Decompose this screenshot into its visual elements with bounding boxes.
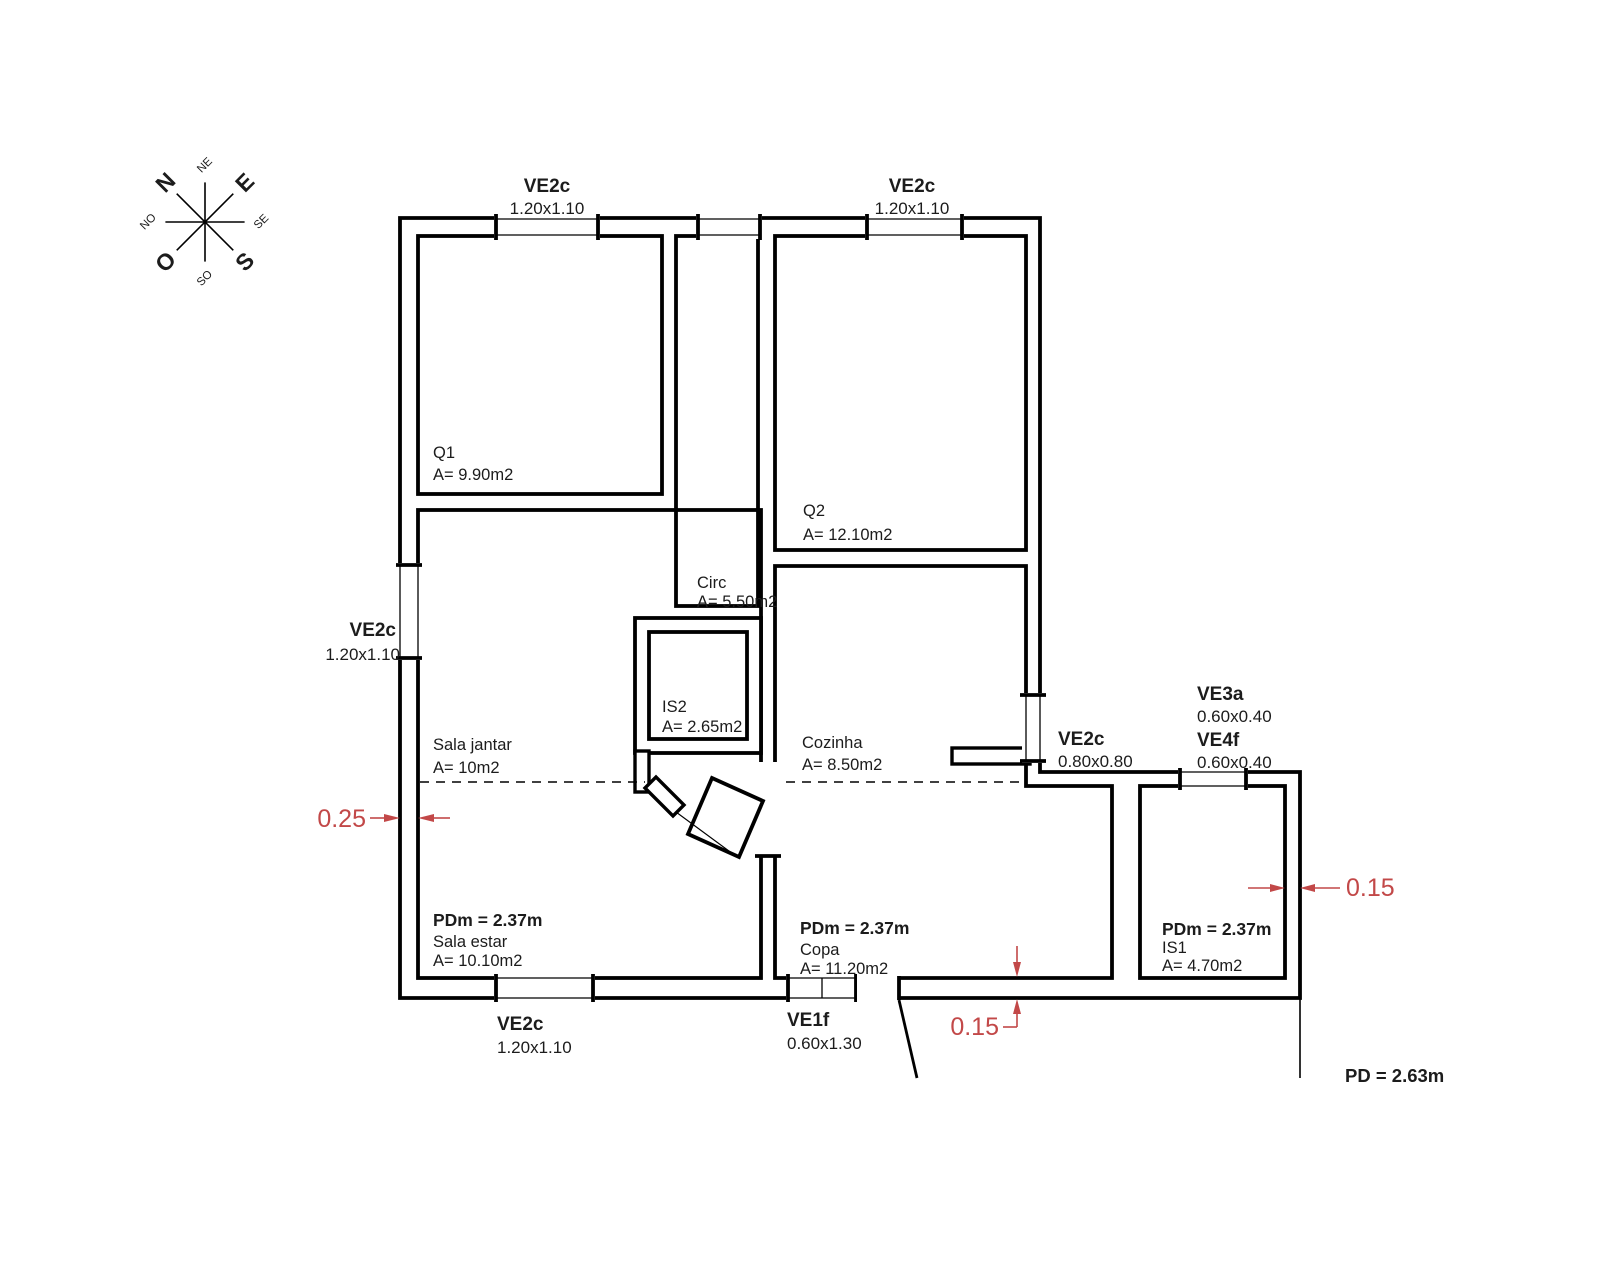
room-label-cozinha: Cozinha A= 8.50m2 — [802, 734, 882, 774]
window-label-top-right: VE2c 1.20x1.10 — [875, 176, 950, 218]
window-ve4f-label: VE4f — [1197, 730, 1240, 751]
room-sala-estar-pdm: PDm = 2.37m — [433, 910, 542, 930]
window-ve2c-top-left-size: 1.20x1.10 — [510, 199, 585, 218]
window-label-left: VE2c 1.20x1.10 — [325, 620, 400, 664]
window-ve2c-right — [1020, 693, 1046, 763]
window-ve1f-size: 0.60x1.30 — [787, 1034, 862, 1053]
room-label-is1: PDm = 2.37m IS1 A= 4.70m2 — [1162, 919, 1271, 975]
room-q1-name: Q1 — [433, 444, 455, 462]
room-is1-name: IS1 — [1162, 939, 1187, 957]
window-ve2c-top-left-label: VE2c — [524, 176, 571, 197]
room-is2-area: A= 2.65m2 — [662, 718, 742, 736]
window-ve2c-left-label: VE2c — [350, 620, 397, 641]
room-outline-circ — [676, 236, 758, 606]
compass-se: SE — [252, 212, 272, 232]
compass-ne: NE — [195, 155, 215, 175]
wall-stub-cozinha-copa — [952, 748, 1030, 764]
window-ve1f — [786, 974, 858, 1002]
compass-s: S — [230, 247, 259, 276]
dimension-wall-left: 0.25 — [317, 805, 450, 833]
door-leaf — [688, 778, 763, 857]
compass-so: SO — [195, 268, 215, 288]
room-label-q2: Q2 A= 12.10m2 — [803, 502, 892, 544]
room-copa-pdm: PDm = 2.37m — [800, 918, 909, 938]
room-sala-jantar-area: A= 10m2 — [433, 759, 500, 777]
room-is2-name: IS2 — [662, 698, 687, 716]
room-cozinha-area: A= 8.50m2 — [802, 756, 882, 774]
room-q1-area: A= 9.90m2 — [433, 466, 513, 484]
room-copa-name: Copa — [800, 941, 840, 959]
window-ve4f-size: 0.60x0.40 — [1197, 753, 1272, 772]
room-cozinha-name: Cozinha — [802, 734, 863, 752]
room-label-sala-estar: PDm = 2.37m Sala estar A= 10.10m2 — [433, 910, 542, 970]
dimension-wall-bottom-value: 0.15 — [950, 1013, 999, 1041]
room-label-copa: PDm = 2.37m Copa A= 11.20m2 — [800, 918, 909, 978]
window-ve1f-label: VE1f — [787, 1010, 830, 1031]
window-ve2c-top-right-size: 1.20x1.10 — [875, 199, 950, 218]
room-is1-pdm: PDm = 2.37m — [1162, 919, 1271, 939]
window-ve3a-label: VE3a — [1197, 684, 1244, 705]
window-ve2c-bottom-label: VE2c — [497, 1014, 544, 1035]
window-circ-top — [696, 214, 762, 240]
floor-plan-page: 0.25 0.15 0.15 VE2c 1.20x1.10 VE2c 1.20x… — [0, 0, 1600, 1280]
window-ve2c-right-size: 0.80x0.80 — [1058, 752, 1133, 771]
compass-n: N — [150, 167, 180, 197]
window-label-ve1f: VE1f 0.60x1.30 — [787, 1010, 862, 1053]
window-ve2c-right-label: VE2c — [1058, 729, 1105, 750]
room-sala-estar-name: Sala estar — [433, 933, 508, 951]
compass-no: NO — [138, 212, 159, 233]
entry-door-leaf — [899, 1000, 917, 1078]
compass-e: E — [230, 168, 259, 197]
room-copa-area: A= 11.20m2 — [800, 960, 888, 978]
window-ve2c-left-size: 1.20x1.10 — [325, 645, 400, 664]
entry-door — [857, 973, 917, 1078]
window-label-bottom: VE2c 1.20x1.10 — [497, 1014, 572, 1057]
window-ve3a-size: 0.60x0.40 — [1197, 707, 1272, 726]
room-label-q1: Q1 A= 9.90m2 — [433, 444, 513, 484]
window-label-annex: VE3a 0.60x0.40 VE4f 0.60x0.40 — [1197, 684, 1272, 772]
dimension-wall-left-value: 0.25 — [317, 805, 366, 833]
dimension-wall-bottom: 0.15 — [950, 946, 1021, 1041]
room-circ-name: Circ — [697, 574, 726, 592]
compass-rose: N E S O NE SE SO NO — [110, 128, 299, 317]
window-label-top-left: VE2c 1.20x1.10 — [510, 176, 585, 218]
room-sala-estar-area: A= 10.10m2 — [433, 952, 522, 970]
exterior-envelope-wall — [400, 218, 1300, 998]
room-is1-area: A= 4.70m2 — [1162, 957, 1242, 975]
dimension-wall-right: 0.15 — [1248, 874, 1395, 902]
chamfer-wall — [645, 777, 684, 816]
room-q2-area: A= 12.10m2 — [803, 526, 892, 544]
window-ve2c-bottom — [494, 974, 595, 1002]
ceiling-height-note: PD = 2.63m — [1345, 1065, 1444, 1086]
room-label-circ: Circ A= 5.50m2 — [697, 574, 777, 611]
window-label-right: VE2c 0.80x0.80 — [1058, 729, 1133, 771]
room-sala-jantar-name: Sala jantar — [433, 736, 512, 754]
dimension-wall-right-value: 0.15 — [1346, 874, 1395, 902]
window-ve2c-bottom-size: 1.20x1.10 — [497, 1038, 572, 1057]
room-q2-name: Q2 — [803, 502, 825, 520]
room-circ-area: A= 5.50m2 — [697, 593, 777, 611]
room-label-sala-jantar: Sala jantar A= 10m2 — [433, 736, 512, 777]
compass-o: O — [150, 246, 181, 277]
floor-plan: 0.25 0.15 0.15 VE2c 1.20x1.10 VE2c 1.20x… — [0, 0, 1600, 1280]
window-ve2c-top-right-label: VE2c — [889, 176, 936, 197]
